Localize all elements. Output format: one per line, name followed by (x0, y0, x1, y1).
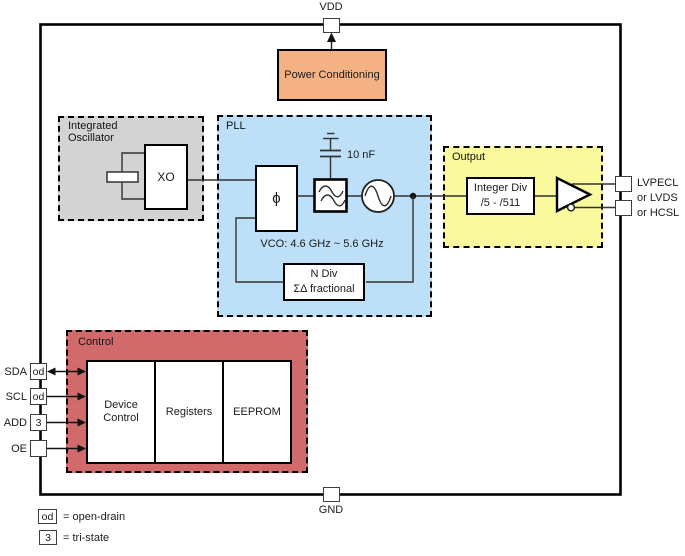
registers-section: Registers (154, 362, 222, 462)
scl-pin-label: SCL (0, 391, 27, 403)
registers-label: Registers (166, 406, 212, 419)
clock-generator-block-diagram: Integrated Oscillator PLL Output Control… (0, 0, 685, 556)
eeprom-section: EEPROM (222, 362, 290, 462)
device-control-label: Device Control (90, 399, 152, 425)
power-conditioning-box: Power Conditioning (277, 49, 387, 101)
up-arrow-icon (327, 33, 336, 50)
clock-output-pin-positive (615, 176, 632, 192)
oe-pin (30, 440, 47, 457)
crystal-resonator-icon (107, 153, 144, 199)
sda-pin: od (30, 363, 47, 380)
control-bus-arrows (47, 368, 86, 453)
scl-badge: od (33, 391, 45, 403)
phi-symbol: ϕ (272, 191, 280, 206)
legend-od-badge-text: od (42, 511, 54, 523)
buffer-triangle-icon (557, 178, 615, 211)
add-pin-label: ADD (0, 417, 27, 429)
legend-od-badge: od (38, 509, 57, 524)
integer-div-range-label: /5 - /511 (481, 196, 521, 211)
clock-output-pin-negative (615, 200, 632, 216)
sigma-delta-fractional-label: ΣΔ fractional (293, 282, 354, 297)
n-div-box: N Div ΣΔ fractional (283, 263, 365, 301)
wave-filter-icon (315, 180, 347, 212)
output-label: Output (452, 151, 485, 163)
oe-pin-label: OE (0, 443, 27, 455)
add-pin: 3 (30, 414, 47, 431)
vco-range-label: VCO: 4.6 GHz ~ 5.6 GHz (232, 238, 412, 251)
legend-tristate-text: = tri-state (63, 532, 109, 545)
legend-tristate-badge-text: 3 (45, 532, 51, 544)
output-standard-line3: or HCSL (637, 206, 679, 221)
add-badge: 3 (36, 417, 42, 429)
control-label: Control (78, 336, 113, 348)
vdd-pin (323, 18, 340, 33)
integer-div-label: Integer Div (474, 181, 527, 196)
integer-div-box: Integer Div /5 - /511 (466, 177, 535, 215)
capacitor-value-label: 10 nF (347, 149, 375, 162)
phase-detector-box: ϕ (255, 165, 298, 232)
scl-pin: od (30, 388, 47, 405)
output-standard-line2: or LVDS (637, 191, 679, 206)
eeprom-label: EEPROM (233, 406, 281, 419)
xo-box-label: XO (157, 170, 174, 185)
gnd-pin (323, 487, 340, 502)
gnd-pin-label: GND (306, 504, 356, 517)
n-div-label: N Div (311, 267, 338, 282)
output-standard-labels: LVPECL or LVDS or HCSL (637, 176, 679, 221)
integrated-oscillator-label: Integrated Oscillator (68, 120, 148, 144)
capacitor-to-ground-icon (320, 134, 341, 180)
device-control-section: Device Control (88, 362, 154, 462)
xo-box: XO (144, 144, 188, 210)
sda-pin-label: SDA (0, 366, 27, 378)
sine-oscillator-icon (362, 180, 394, 212)
legend-od-text: = open-drain (63, 511, 125, 524)
output-standard-line1: LVPECL (637, 176, 679, 191)
power-conditioning-box-label: Power Conditioning (284, 68, 379, 83)
control-inner-box: Device Control Registers EEPROM (86, 360, 292, 464)
vdd-pin-label: VDD (306, 1, 356, 14)
pll-label: PLL (226, 120, 246, 132)
legend-tristate-badge: 3 (39, 530, 57, 545)
sda-badge: od (33, 366, 45, 378)
